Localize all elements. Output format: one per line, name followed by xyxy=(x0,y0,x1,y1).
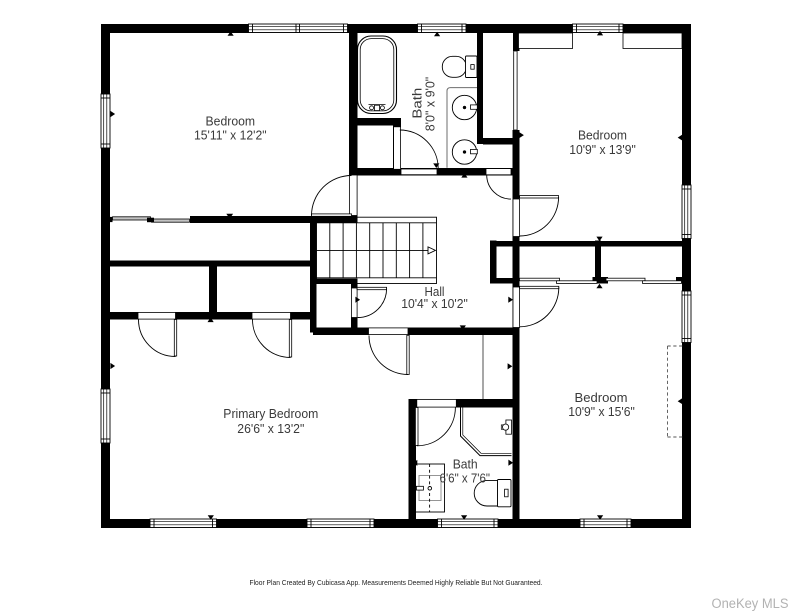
svg-text:15'11" x 12'2": 15'11" x 12'2" xyxy=(194,128,267,143)
svg-text:10'9" x 15'6": 10'9" x 15'6" xyxy=(568,404,635,419)
svg-text:Bedroom: Bedroom xyxy=(578,127,627,142)
svg-text:8'0" x 9'0": 8'0" x 9'0" xyxy=(422,76,437,131)
svg-text:10'9" x 13'9": 10'9" x 13'9" xyxy=(569,142,636,157)
svg-text:6'6" x 7'6": 6'6" x 7'6" xyxy=(440,470,491,485)
svg-text:26'6" x 13'2": 26'6" x 13'2" xyxy=(237,421,304,436)
svg-text:Bedroom: Bedroom xyxy=(575,390,628,405)
svg-text:Primary Bedroom: Primary Bedroom xyxy=(223,406,318,421)
svg-text:Floor Plan Created By Cubicasa: Floor Plan Created By Cubicasa App. Meas… xyxy=(250,578,543,587)
svg-text:OneKey MLS: OneKey MLS xyxy=(712,596,789,612)
svg-text:Bedroom: Bedroom xyxy=(206,113,256,128)
svg-text:10'4" x 10'2": 10'4" x 10'2" xyxy=(401,296,468,311)
svg-text:Bath: Bath xyxy=(453,456,478,471)
